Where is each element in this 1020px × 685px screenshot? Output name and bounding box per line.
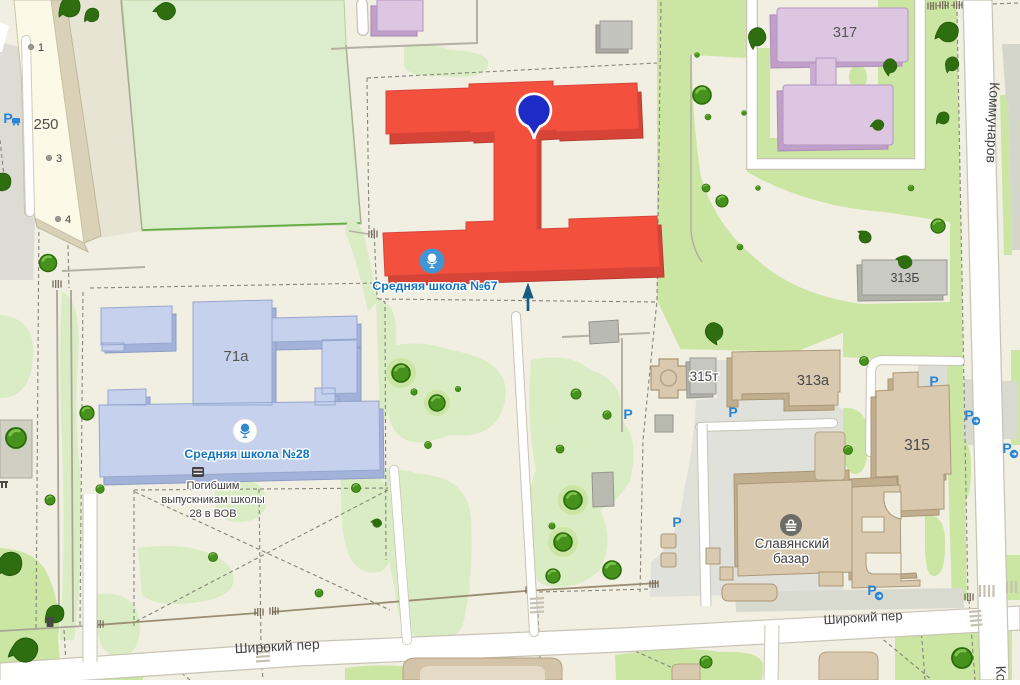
- svg-text:317: 317: [833, 25, 857, 41]
- svg-text:28 в ВОВ: 28 в ВОВ: [189, 508, 236, 520]
- svg-text:Р: Р: [3, 110, 12, 126]
- svg-text:250: 250: [33, 116, 58, 133]
- svg-text:313Б: 313Б: [890, 271, 919, 285]
- svg-text:Погибшим: Погибшим: [186, 480, 239, 492]
- svg-text:4: 4: [65, 214, 71, 226]
- svg-text:3: 3: [56, 153, 62, 165]
- svg-text:Р: Р: [728, 404, 737, 420]
- svg-text:315: 315: [904, 437, 930, 454]
- svg-text:1: 1: [38, 42, 44, 54]
- svg-text:Славянский: Славянский: [755, 536, 830, 551]
- svg-text:71а: 71а: [223, 348, 249, 365]
- svg-text:базар: базар: [773, 551, 809, 566]
- svg-text:313а: 313а: [797, 373, 830, 389]
- svg-text:Р: Р: [929, 373, 938, 389]
- svg-text:Средняя школа №28: Средняя школа №28: [184, 447, 309, 461]
- svg-text:выпускникам школы: выпускникам школы: [161, 494, 264, 506]
- svg-text:Р: Р: [672, 514, 681, 530]
- svg-text:315т: 315т: [690, 369, 719, 384]
- svg-text:Средняя школа №67: Средняя школа №67: [372, 279, 497, 293]
- svg-text:Р: Р: [623, 406, 632, 422]
